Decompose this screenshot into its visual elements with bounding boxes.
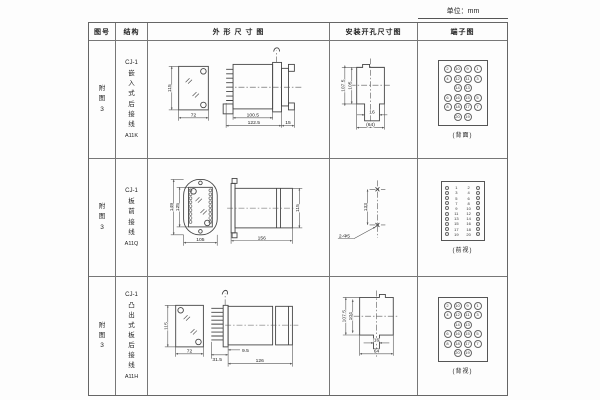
dim-inner-height: 104 bbox=[348, 312, 354, 320]
row3-mounting-cell: 107.5 104 16 64 bbox=[330, 277, 418, 395]
terminal-18: 18 bbox=[454, 103, 462, 111]
terminal-hole bbox=[476, 186, 480, 190]
terminal-empty bbox=[444, 349, 452, 357]
terminal-3: 3 bbox=[474, 75, 482, 83]
fig-no-text: 附图3 bbox=[99, 84, 106, 114]
terminal-17: 17 bbox=[464, 340, 472, 348]
terminal-20: 20 bbox=[454, 113, 462, 121]
dim-overall-width: (64) bbox=[366, 122, 375, 128]
fig-no-text: 附图3 bbox=[99, 202, 106, 232]
terminal-11: 11 bbox=[464, 75, 472, 83]
terminal-empty bbox=[474, 321, 482, 329]
terminal-15: 15 bbox=[464, 330, 472, 338]
mounting-drawing-a11q: 133 2-Φ5 bbox=[330, 159, 417, 277]
dim-body-depth: 100.5 bbox=[247, 112, 260, 118]
dim-total-depth: 122.5 bbox=[248, 120, 261, 126]
row3-structure: CJ-1 凸出式板后接线 A11H bbox=[116, 277, 148, 395]
dim-tab-width: 16 bbox=[374, 337, 380, 343]
terminal-9: 9 bbox=[464, 302, 472, 310]
terminal-hole bbox=[476, 217, 480, 221]
row1-structure: CJ-1 嵌入式后接线 A11K bbox=[116, 41, 148, 159]
dim-hole-spacing: 133 bbox=[363, 202, 369, 210]
dim-holes-label: 2-Φ5 bbox=[339, 233, 350, 239]
terminal-hole bbox=[445, 217, 449, 221]
terminal-9: 9 bbox=[464, 65, 472, 73]
structure-model: CJ-1 bbox=[125, 188, 138, 194]
terminal-6: 6 bbox=[444, 94, 452, 102]
terminal-empty bbox=[444, 321, 452, 329]
terminal-hole bbox=[445, 206, 449, 210]
terminal-1: 1 bbox=[474, 302, 482, 310]
terminal-hole bbox=[445, 222, 449, 226]
outline-drawing-a11k: 115 72 100.5 122.5 15 bbox=[148, 41, 329, 159]
dim-slot-width: 16 bbox=[369, 109, 375, 115]
dim-flange-depth: 9.5 bbox=[242, 348, 249, 354]
terminal-hole bbox=[445, 201, 449, 205]
terminal-caption: (前视) bbox=[453, 245, 473, 254]
dim-outer-height: 107.5 bbox=[340, 79, 346, 92]
terminal-3: 3 bbox=[474, 311, 482, 319]
structure-mount-type: 嵌入式后接线 bbox=[128, 69, 135, 129]
dim-overall-width: 64 bbox=[374, 348, 380, 354]
terminal-hole bbox=[445, 196, 449, 200]
terminal-hole bbox=[445, 232, 449, 236]
header-fig-no: 图号 bbox=[89, 23, 116, 41]
terminal-16: 16 bbox=[454, 94, 462, 102]
structure-code: A11Q bbox=[125, 241, 139, 247]
row3-terminal-cell: 2109141211314136161558181772019 (背视) bbox=[418, 277, 507, 395]
terminal-14: 14 bbox=[454, 321, 462, 329]
terminal-17: 17 bbox=[464, 103, 472, 111]
terminal-hole bbox=[476, 232, 480, 236]
terminal-hole bbox=[476, 212, 480, 216]
outline-drawing-a11q: 149 125 105 156 115 bbox=[148, 159, 329, 277]
terminal-hole bbox=[476, 222, 480, 226]
terminal-caption: (背面) bbox=[453, 130, 473, 139]
terminal-hole bbox=[445, 186, 449, 190]
terminal-8: 8 bbox=[444, 340, 452, 348]
mounting-drawing-a11k: 107.5 105 16 (64) bbox=[330, 41, 417, 159]
spec-table: 图号 结构 外 形 尺 寸 图 安装开孔尺寸图 端子图 附图3 CJ-1 嵌入式… bbox=[88, 22, 508, 396]
terminal-19: 19 bbox=[464, 349, 472, 357]
structure-model: CJ-1 bbox=[125, 60, 138, 66]
terminal-12: 12 bbox=[454, 311, 462, 319]
dim-body-depth: 126 bbox=[256, 358, 264, 364]
terminal-4: 4 bbox=[444, 75, 452, 83]
terminal-13: 13 bbox=[464, 84, 472, 92]
terminal-diagram-a11h: 2109141211314136161558181772019 bbox=[438, 297, 488, 363]
fig-no-text: 附图3 bbox=[99, 321, 106, 351]
dim-pin-depth: 31.5 bbox=[212, 357, 222, 363]
header-mounting: 安装开孔尺寸图 bbox=[330, 23, 418, 41]
row3-fig-no: 附图3 bbox=[89, 277, 116, 395]
dim-front-height: 115 bbox=[163, 322, 169, 330]
dim-front-height: 115 bbox=[167, 83, 173, 91]
terminal-empty bbox=[444, 84, 452, 92]
terminal-20: 20 bbox=[454, 349, 462, 357]
terminal-4: 4 bbox=[444, 311, 452, 319]
terminal-2: 2 bbox=[444, 302, 452, 310]
terminal-10: 10 bbox=[454, 302, 462, 310]
dim-depth: 156 bbox=[258, 235, 266, 241]
terminal-11: 11 bbox=[464, 311, 472, 319]
terminal-16: 16 bbox=[454, 330, 462, 338]
terminal-empty bbox=[474, 84, 482, 92]
dim-outer-height: 107.5 bbox=[341, 310, 347, 323]
row3-outline-cell: 115 72 31.5 9.5 126 bbox=[148, 277, 330, 395]
mounting-drawing-a11h: 107.5 104 16 64 bbox=[330, 277, 417, 395]
row2-terminal-cell: 1234567891011121314151617181920 (前视) bbox=[418, 159, 507, 277]
terminal-empty bbox=[474, 113, 482, 121]
terminal-18: 18 bbox=[454, 340, 462, 348]
terminal-15: 15 bbox=[464, 94, 472, 102]
terminal-hole bbox=[445, 191, 449, 195]
terminal-hole bbox=[476, 191, 480, 195]
terminal-7: 7 bbox=[474, 103, 482, 111]
row1-fig-no: 附图3 bbox=[89, 41, 116, 159]
terminal-14: 14 bbox=[454, 84, 462, 92]
row2-mounting-cell: 133 2-Φ5 bbox=[330, 159, 418, 277]
structure-mount-type: 板前接线 bbox=[128, 197, 135, 237]
row2-fig-no: 附图3 bbox=[89, 159, 116, 277]
outline-drawing-a11h: 115 72 31.5 9.5 126 bbox=[148, 277, 329, 395]
dim-front-outer-height: 149 bbox=[169, 202, 175, 210]
terminal-diagram-a11q: 1234567891011121314151617181920 bbox=[441, 181, 485, 241]
header-terminal: 端子图 bbox=[418, 23, 507, 41]
terminal-number: 20 bbox=[464, 232, 473, 237]
terminal-number: 19 bbox=[452, 232, 461, 237]
terminal-hole bbox=[476, 227, 480, 231]
terminal-5: 5 bbox=[474, 330, 482, 338]
terminal-19: 19 bbox=[464, 113, 472, 121]
structure-model: CJ-1 bbox=[125, 292, 138, 298]
terminal-hole bbox=[476, 206, 480, 210]
dim-side-height: 115 bbox=[295, 203, 301, 211]
header-structure: 结构 bbox=[116, 23, 148, 41]
terminal-1: 1 bbox=[474, 65, 482, 73]
structure-code: A11K bbox=[125, 133, 138, 139]
terminal-hole bbox=[445, 227, 449, 231]
terminal-empty bbox=[444, 113, 452, 121]
header-outline: 外 形 尺 寸 图 bbox=[148, 23, 330, 41]
terminal-hole bbox=[476, 196, 480, 200]
dim-front-width: 72 bbox=[187, 348, 193, 354]
terminal-2: 2 bbox=[444, 65, 452, 73]
dim-front-width: 105 bbox=[196, 237, 204, 243]
terminal-8: 8 bbox=[444, 103, 452, 111]
row1-outline-cell: 115 72 100.5 122.5 15 bbox=[148, 41, 330, 159]
terminal-hole bbox=[445, 212, 449, 216]
dim-front-width: 72 bbox=[191, 112, 197, 118]
dim-front-inner-height: 125 bbox=[175, 202, 181, 210]
terminal-6: 6 bbox=[444, 330, 452, 338]
terminal-hole bbox=[476, 201, 480, 205]
terminal-row: 1920 bbox=[444, 232, 482, 237]
row2-outline-cell: 149 125 105 156 115 bbox=[148, 159, 330, 277]
row2-structure: CJ-1 板前接线 A11Q bbox=[116, 159, 148, 277]
row1-terminal-cell: 2109141211314136161558181772019 (背面) bbox=[418, 41, 507, 159]
structure-mount-type: 凸出式板后接线 bbox=[128, 301, 135, 371]
dim-inner-height: 105 bbox=[347, 81, 353, 89]
terminal-7: 7 bbox=[474, 340, 482, 348]
terminal-5: 5 bbox=[474, 94, 482, 102]
terminal-diagram-a11k: 2109141211314136161558181772019 bbox=[438, 60, 488, 126]
terminal-caption: (背视) bbox=[453, 366, 473, 375]
structure-code: A11H bbox=[125, 374, 138, 380]
terminal-10: 10 bbox=[454, 65, 462, 73]
row1-mounting-cell: 107.5 105 16 (64) bbox=[330, 41, 418, 159]
terminal-12: 12 bbox=[454, 75, 462, 83]
terminal-empty bbox=[474, 349, 482, 357]
terminal-13: 13 bbox=[464, 321, 472, 329]
dim-rear-depth: 15 bbox=[285, 120, 291, 126]
unit-label: 单位：mm bbox=[418, 6, 508, 19]
